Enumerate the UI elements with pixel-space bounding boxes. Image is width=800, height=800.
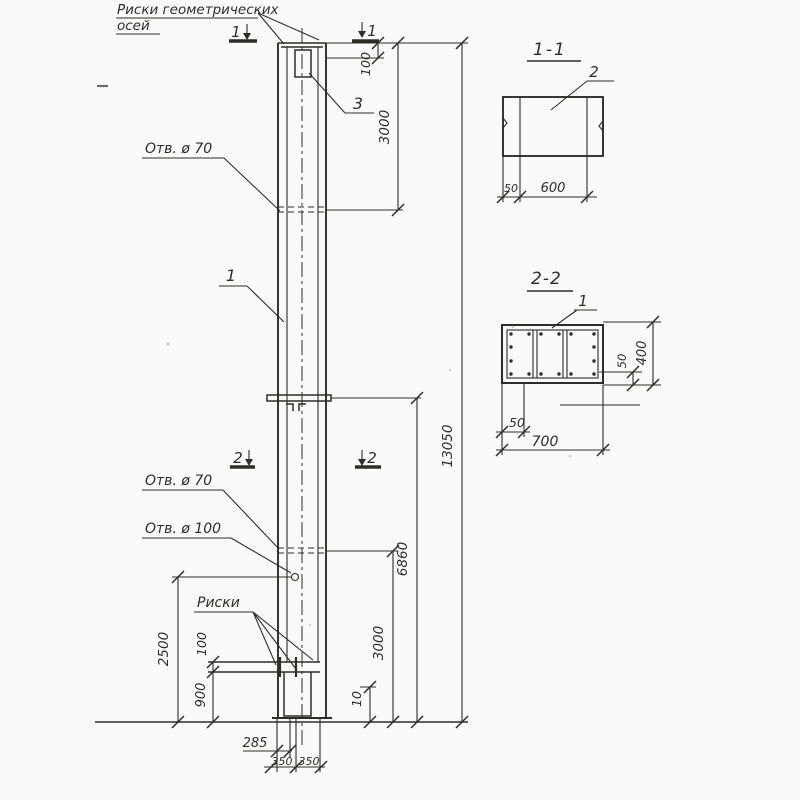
technical-drawing: 1 1 2 2 Риски геометрических осей 3 Отв.… — [0, 0, 800, 800]
dim-900: 900 — [194, 683, 209, 708]
section-2-2-stirrup — [507, 330, 598, 378]
section-2-2-pos-1: 1 — [578, 292, 588, 310]
section-2-2-dim-ticks — [496, 316, 659, 456]
bottom-socket — [284, 672, 311, 716]
section-1-1-pos-2: 2 — [589, 63, 599, 81]
label-hole70-top: Отв. ø 70 — [145, 141, 212, 157]
bottom-mark-band — [208, 662, 320, 672]
column-top-cap — [278, 43, 326, 47]
hole70-top-leader — [142, 158, 280, 211]
position-1: 1 — [226, 266, 236, 285]
section-1-1-title: 1-1 — [533, 40, 567, 60]
callouts: Риски геометрических осей 3 Отв. ø 70 1 … — [116, 2, 374, 669]
cut-mark-1-left: 1 — [231, 23, 241, 41]
section-1-1-dim-50: 50 — [504, 182, 518, 195]
section-2-2-rebar-dots — [509, 332, 595, 375]
hole100-leader — [142, 538, 291, 573]
section-2-2-title: 2-2 — [531, 269, 562, 289]
corbel-plate — [267, 395, 331, 401]
section-2-2: 2-2 1 400 50 50 700 — [496, 269, 661, 456]
dimension-texts: 100 3000 13050 6860 3000 10 2500 100 900… — [156, 52, 456, 768]
embedded-plate — [295, 50, 311, 77]
label-hole100: Отв. ø 100 — [145, 521, 221, 537]
cut-arrow-stems — [247, 22, 362, 462]
cut-mark-1-right: 1 — [367, 22, 377, 40]
scanned-drawing-page: 1 1 2 2 Риски геометрических осей 3 Отв.… — [0, 0, 800, 800]
top-ext-lines — [326, 43, 468, 58]
section-1-1-inner-lines — [520, 97, 587, 156]
hole-100 — [292, 574, 299, 581]
position-3: 3 — [353, 94, 363, 113]
dim-6860: 6860 — [395, 542, 411, 576]
dim-3000-top: 3000 — [377, 110, 393, 144]
dim-350-right: 350 — [299, 755, 320, 768]
dim-100-top: 100 — [358, 52, 373, 76]
dim-350-left: 350 — [272, 755, 293, 768]
cut-mark-2-right: 2 — [367, 449, 377, 467]
corbel-axis-marks — [286, 404, 306, 411]
dim-285: 285 — [243, 736, 268, 751]
bottom-axis-marks — [280, 657, 296, 677]
section-1-1: 1-1 2 50 600 — [497, 40, 614, 203]
section-1-1-outline — [503, 97, 603, 156]
section-2-2-dim-400: 400 — [635, 341, 650, 366]
label-axis-marks-line2: осей — [117, 18, 150, 34]
dim-2500: 2500 — [156, 632, 172, 666]
dim-10: 10 — [349, 691, 364, 707]
position-3-leader — [309, 73, 374, 113]
label-riski: Риски — [197, 595, 240, 611]
section-1-1-break-marks — [503, 118, 603, 131]
scan-artifacts — [97, 86, 571, 626]
label-axis-marks-line1: Риски геометрических — [117, 2, 280, 18]
section-1-1-dim-600: 600 — [541, 181, 566, 196]
section-2-2-dividers — [533, 330, 567, 378]
dim-3000-bottom: 3000 — [371, 626, 387, 660]
cut-mark-2-left: 2 — [233, 449, 243, 467]
position-1-leader — [219, 286, 284, 322]
dim-13050-total: 13050 — [440, 425, 456, 468]
section-1-1-pos-leader — [551, 81, 614, 110]
hole70-bottom-leader — [142, 490, 279, 549]
section-2-2-dim-50-right: 50 — [615, 354, 629, 369]
section-2-2-outline — [502, 325, 603, 383]
section-2-2-dim-700: 700 — [532, 434, 559, 450]
dim-100-left: 100 — [194, 632, 209, 656]
section-2-2-dim-50-bottom: 50 — [509, 415, 525, 430]
column-elevation — [95, 28, 468, 772]
label-hole70-bottom: Отв. ø 70 — [145, 473, 212, 489]
